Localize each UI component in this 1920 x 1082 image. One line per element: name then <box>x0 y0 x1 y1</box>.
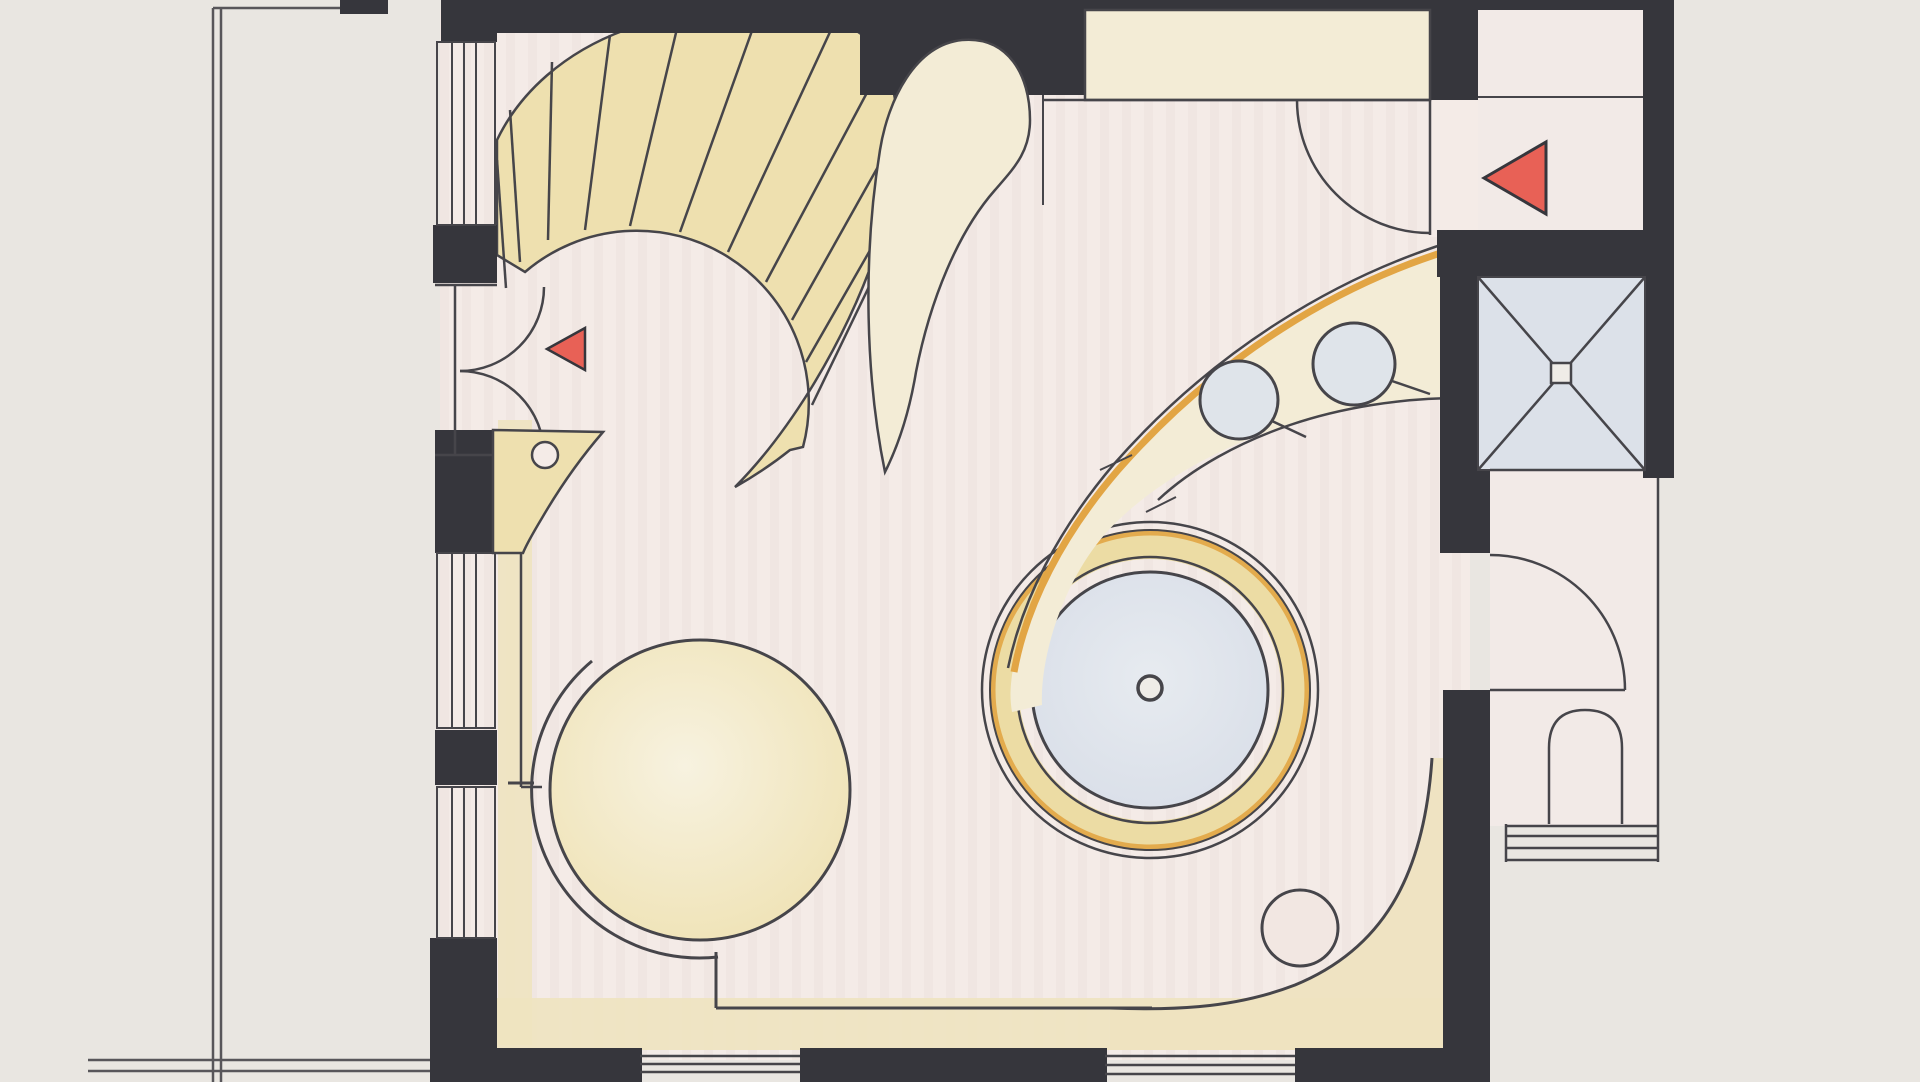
floor-lamp-circle <box>1262 890 1338 966</box>
shower-cabin <box>1478 277 1645 470</box>
bar-stool-1 <box>1200 361 1278 439</box>
floor-plan-drawing <box>0 0 1920 1082</box>
vanity-sink <box>532 442 558 468</box>
shower-drain <box>1551 363 1571 383</box>
tub-drain <box>1138 676 1162 700</box>
bar-stool-2 <box>1313 323 1395 405</box>
floor-plan-photo <box>0 0 1920 1082</box>
